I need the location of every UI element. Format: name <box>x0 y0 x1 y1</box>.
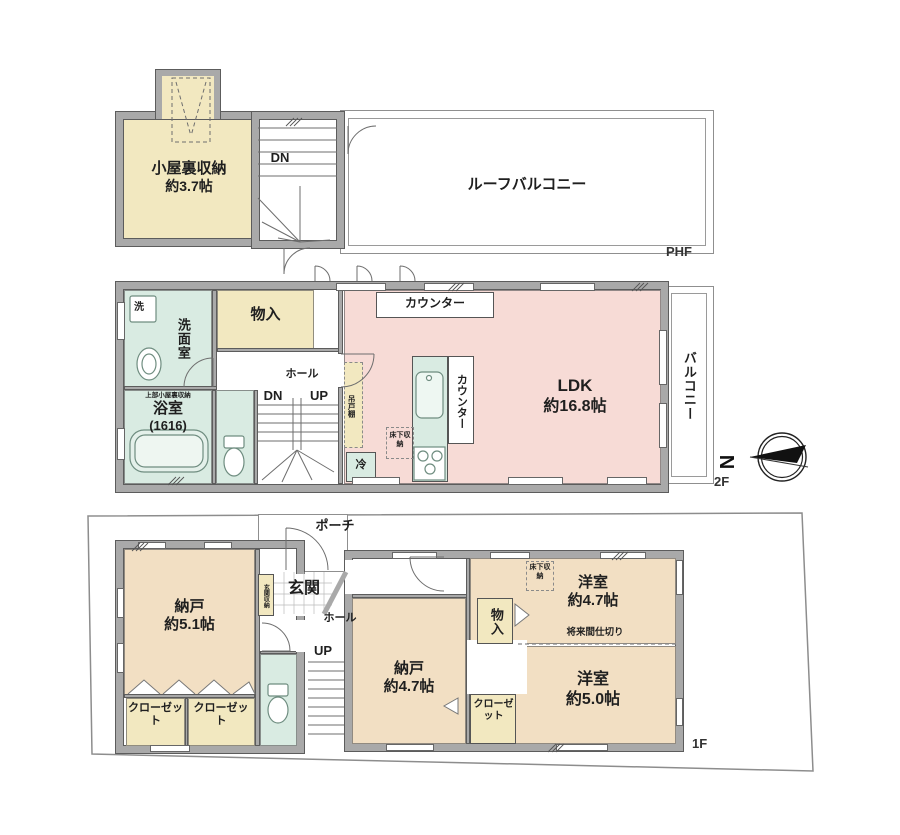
western-50-label: 洋室 約5.0帖 <box>518 670 668 709</box>
future-partition-label: 将来間仕切り <box>535 627 655 639</box>
1f-stairs <box>308 662 344 734</box>
monoire-1f-label: 物入 <box>488 602 504 642</box>
counter-top-label: カウンター <box>376 296 494 311</box>
entrance-label: 玄関 <box>276 579 332 599</box>
closet-a-label: クローゼット <box>128 702 183 729</box>
hanging-cupboard-label: 吊戸棚 <box>347 376 356 436</box>
closet-mid-label: クローゼット <box>472 699 515 723</box>
attic-room-label: 小屋裏収納 約3.7帖 <box>122 160 256 195</box>
compass: N <box>717 433 808 481</box>
porch-label: ポーチ <box>303 518 367 534</box>
floor-tag-1f: 1F <box>692 736 707 752</box>
western-47-label: 洋室 約4.7帖 <box>518 574 668 611</box>
entrance-storage-label: 玄関収納 <box>261 577 268 615</box>
washer-label: 洗 <box>134 302 144 314</box>
floor-tag-2f: 2F <box>714 474 729 490</box>
floorplan-canvas: N 小屋裏収納 約3.7帖 DN ルーフバルコニー PHF カウンター 物入 洗… <box>0 0 900 835</box>
monoire-2f-label: 物入 <box>217 306 314 324</box>
floor-tag-phf: PHF <box>666 244 692 260</box>
2f-stairs <box>258 398 338 482</box>
fridge-label: 冷 <box>346 459 376 472</box>
phf-dn-label: DN <box>262 150 298 166</box>
roof-balcony-label: ルーフバルコニー <box>340 176 714 194</box>
storage-47-label: 納戸 約4.7帖 <box>352 660 466 697</box>
hall-1f-label: ホール <box>318 612 362 625</box>
counter-side-label: カウンター <box>454 362 467 440</box>
underfloor-2f-label: 床下収納 <box>388 431 412 449</box>
up-1f-label: UP <box>308 643 338 659</box>
ldk-label: LDK 約16.8帖 <box>495 376 655 416</box>
dn-2f-label: DN <box>258 388 288 404</box>
bath-note-label: 上部小屋裏収納 <box>126 392 210 400</box>
balcony-label: バルコニー <box>681 338 697 434</box>
up-2f-label: UP <box>304 388 334 404</box>
1f-toilet-fixture <box>268 684 288 723</box>
closet-b-label: クローゼット <box>190 702 252 729</box>
phf-stairs <box>258 126 376 274</box>
hall-2f-label: ホール <box>280 368 324 381</box>
bath-label: 浴室 (1616) <box>126 400 210 434</box>
phf-ladder <box>172 78 210 142</box>
compass-north-label: N <box>717 455 739 469</box>
washroom-label: 洗面室 <box>175 306 191 372</box>
storage-51-label: 納戸 約5.1帖 <box>124 598 255 635</box>
